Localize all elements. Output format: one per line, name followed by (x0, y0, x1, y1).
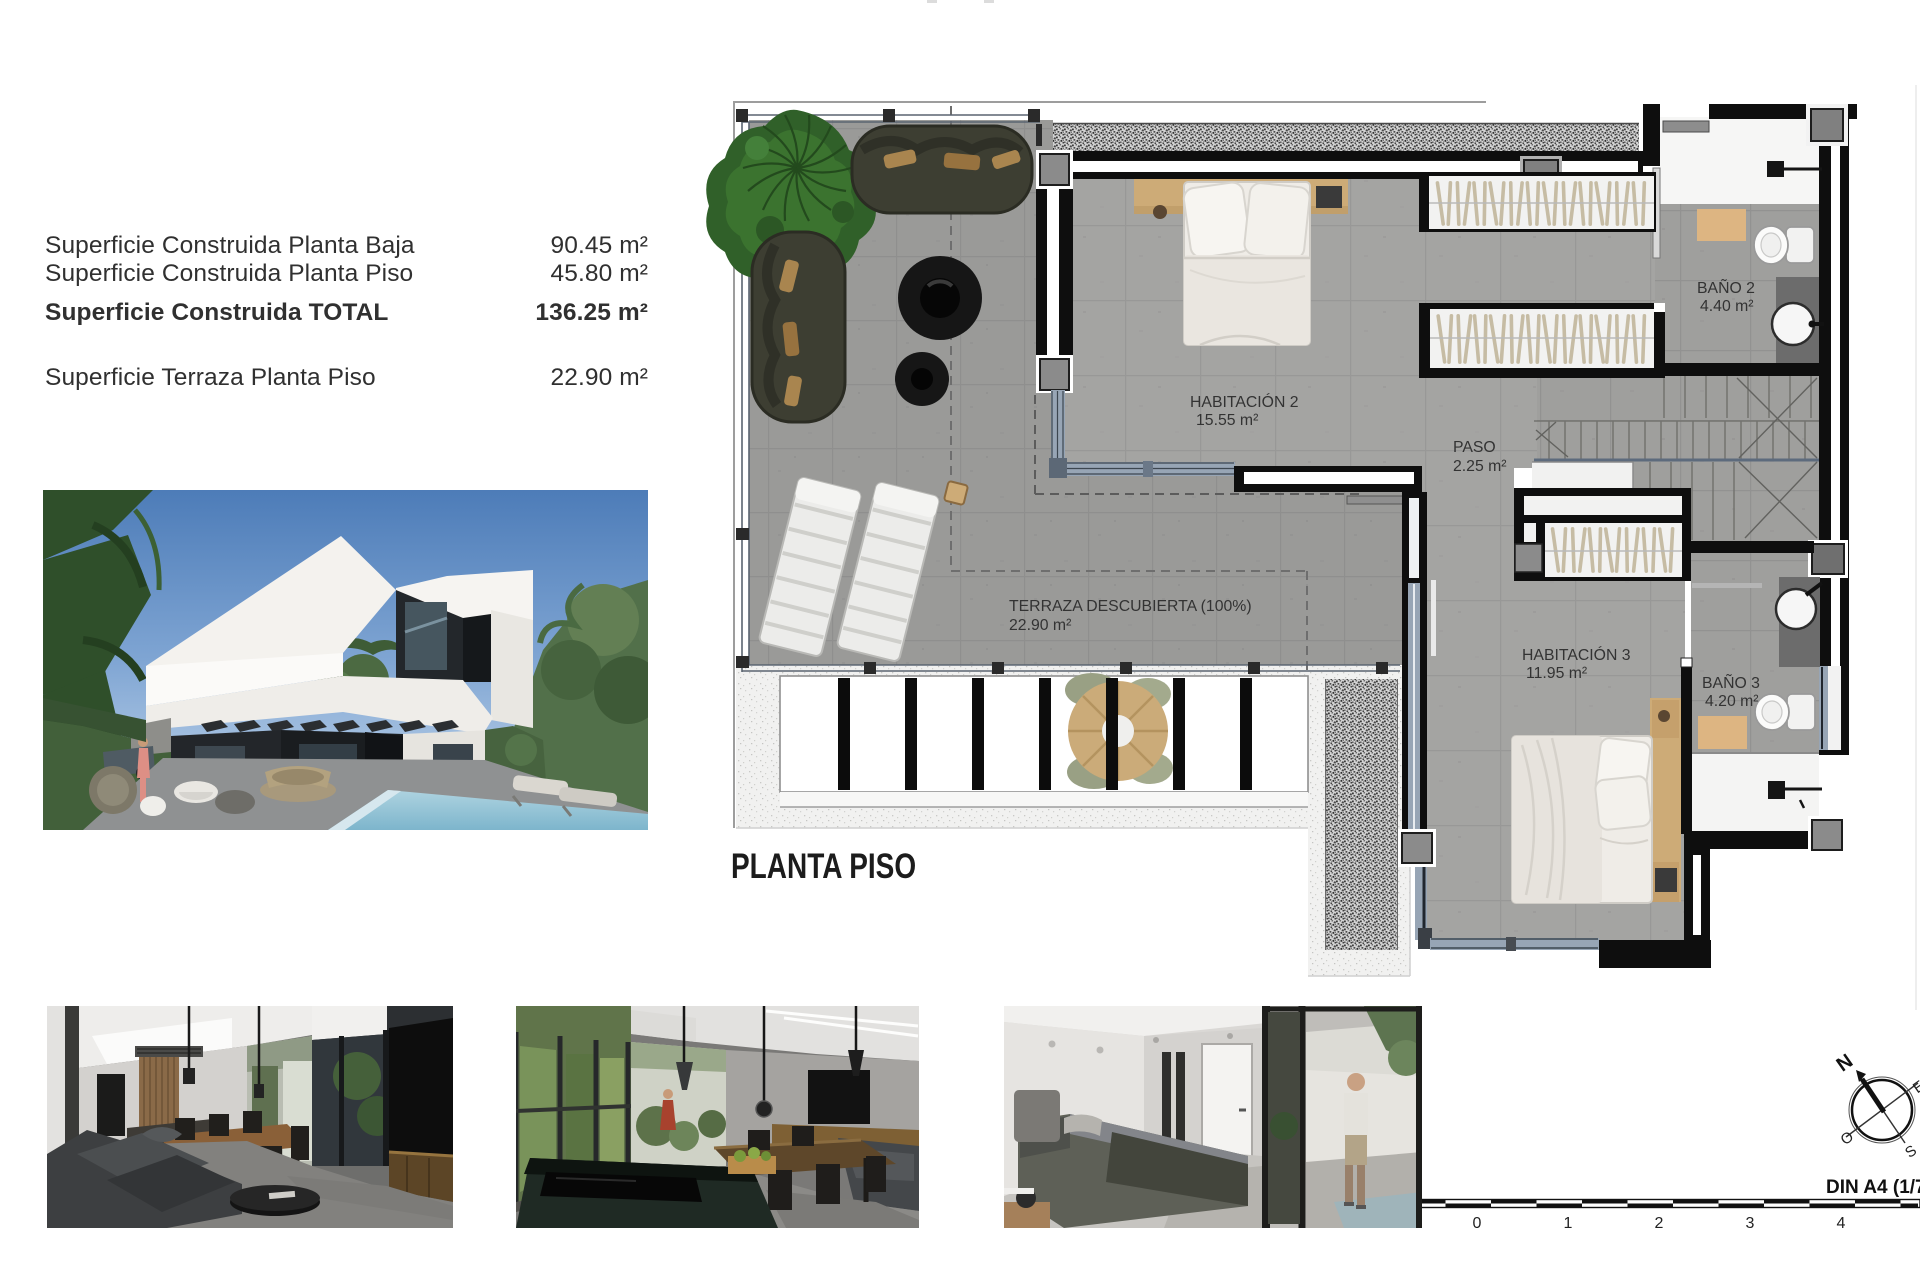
svg-text:2: 2 (1655, 1215, 1664, 1232)
svg-text:0: 0 (1473, 1215, 1482, 1232)
svg-text:TERRAZA DESCUBIERTA (100%): TERRAZA DESCUBIERTA (100%) (1009, 598, 1252, 615)
svg-text:1: 1 (1564, 1215, 1573, 1232)
svg-text:PASO: PASO (1453, 439, 1496, 456)
svg-text:3: 3 (1746, 1215, 1755, 1232)
svg-text:22.90 m²: 22.90 m² (1009, 617, 1071, 634)
svg-text:HABITACIÓN 3: HABITACIÓN 3 (1522, 645, 1631, 664)
svg-text:HABITACIÓN 2: HABITACIÓN 2 (1190, 392, 1299, 411)
svg-text:DIN A4 (1/75): DIN A4 (1/75) (1826, 1177, 1920, 1198)
svg-text:BAÑO 2: BAÑO 2 (1697, 277, 1755, 297)
svg-text:N: N (1833, 1050, 1857, 1076)
svg-text:S: S (1902, 1142, 1920, 1162)
svg-text:11.95 m²: 11.95 m² (1526, 665, 1587, 682)
svg-text:4.40 m²: 4.40 m² (1700, 298, 1754, 315)
svg-text:4: 4 (1837, 1215, 1846, 1232)
svg-text:BAÑO 3: BAÑO 3 (1702, 672, 1760, 692)
svg-text:15.55 m²: 15.55 m² (1196, 412, 1258, 429)
svg-text:4.20 m²: 4.20 m² (1705, 693, 1759, 710)
svg-text:2.25 m²: 2.25 m² (1453, 458, 1507, 475)
